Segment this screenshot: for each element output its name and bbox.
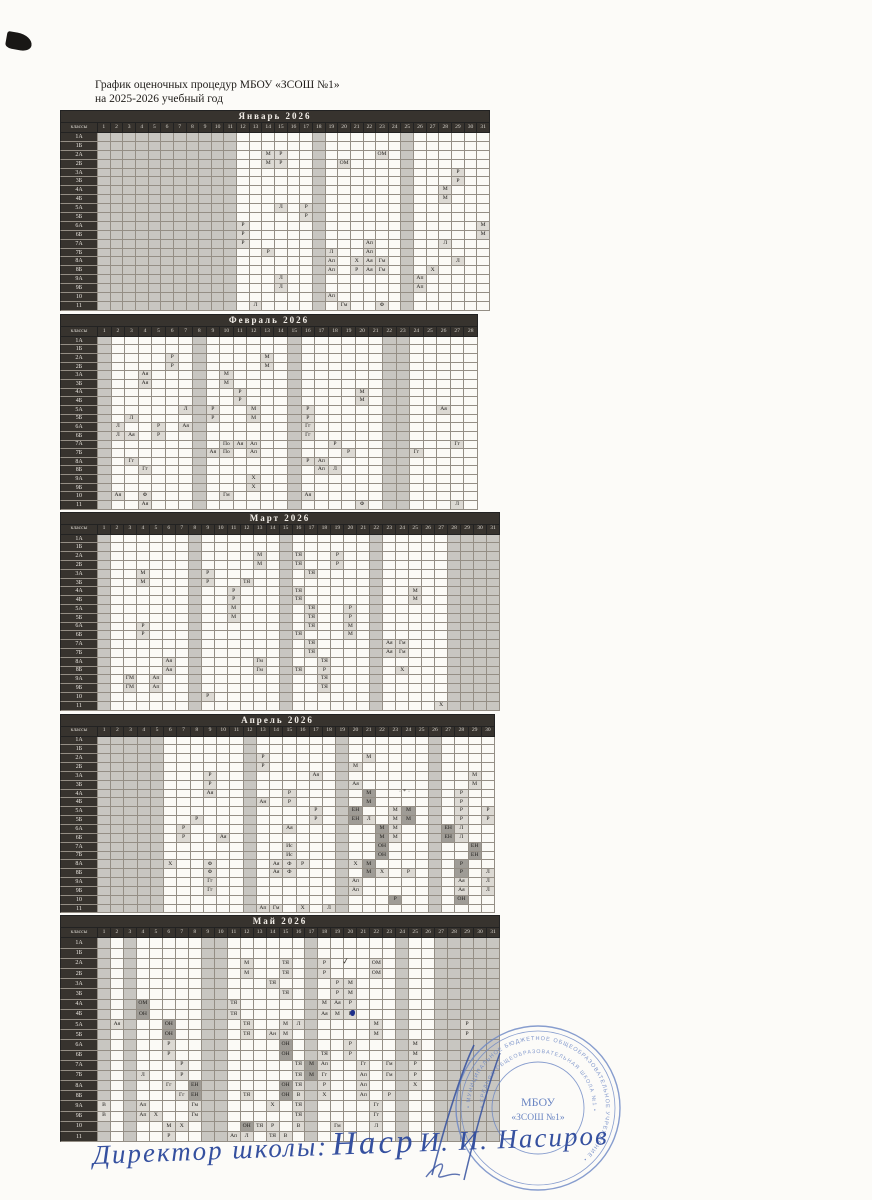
day-cell [376,133,389,142]
nonworking-day-cell [429,781,442,790]
nonworking-day-cell [124,949,137,959]
day-cell [288,284,301,293]
day-cell [376,231,389,240]
nonworking-day-cell [149,177,162,186]
day-cell [176,1101,189,1111]
class-row: 1Б [60,345,478,354]
nonworking-day-cell [98,466,112,475]
day-number: 26 [422,525,435,535]
class-row: 2АРМ [60,754,495,763]
day-cell [344,684,357,693]
day-cell [363,745,376,754]
day-cell [356,406,370,415]
class-row: 4АРТЯМ [60,587,500,596]
day-cell [344,552,357,561]
assessment-cell: Х [176,1122,189,1132]
day-cell [228,552,241,561]
assessment-cell: Р [166,363,180,372]
nonworking-day-cell [124,1071,137,1081]
day-cell [452,142,465,151]
day-cell [410,458,424,467]
nonworking-day-cell [151,878,164,887]
assessment-cell: ОМ [137,1000,150,1010]
class-row: 7АПоАяАпРГг [60,441,478,450]
day-cell [237,257,250,266]
day-cell [331,658,344,667]
nonworking-day-cell [224,133,237,142]
day-cell [409,561,422,570]
class-label: 11 [60,501,98,510]
nonworking-day-cell [383,345,397,354]
nonworking-day-cell [280,587,293,596]
nonworking-day-cell [98,257,111,266]
assessment-cell: Ая [270,869,283,878]
nonworking-day-cell [161,257,174,266]
day-cell [215,658,228,667]
day-cell [202,649,215,658]
day-cell [228,1040,241,1050]
day-cell [369,345,383,354]
nonworking-day-cell [124,938,137,948]
day-number: 11 [224,123,237,133]
nonworking-day-cell [98,363,112,372]
day-cell [422,979,435,989]
nonworking-day-cell [151,816,164,825]
nonworking-day-cell [187,195,200,204]
day-cell [288,257,301,266]
nonworking-day-cell [138,754,151,763]
nonworking-day-cell [202,1040,215,1050]
nonworking-day-cell [199,213,212,222]
day-cell [452,240,465,249]
nonworking-day-cell [448,969,461,979]
nonworking-day-cell [461,579,474,588]
nonworking-day-cell [288,397,302,406]
day-cell [300,284,313,293]
day-cell [166,466,180,475]
nonworking-day-cell [212,186,225,195]
nonworking-day-cell [370,675,383,684]
day-cell [315,371,329,380]
nonworking-day-cell [189,587,202,596]
day-cell [331,1101,344,1111]
day-cell [228,1020,241,1030]
assessment-cell: М [344,631,357,640]
day-number: 24 [402,727,415,737]
assessment-cell: ТЯ [293,1081,306,1091]
day-cell [207,371,221,380]
day-cell [439,169,452,178]
day-cell [318,693,331,702]
day-cell [247,423,261,432]
nonworking-day-cell [487,989,500,999]
day-cell [241,989,254,999]
day-cell [237,266,250,275]
day-cell [137,587,150,596]
nonworking-day-cell [487,579,500,588]
day-cell [191,790,204,799]
day-cell [389,231,402,240]
nonworking-day-cell [288,380,302,389]
assessment-cell: Р [351,266,364,275]
day-cell [315,423,329,432]
nonworking-day-cell [474,640,487,649]
day-cell [288,302,301,311]
day-cell [318,1112,331,1122]
nonworking-day-cell [474,675,487,684]
nonworking-day-cell [111,266,124,275]
day-cell [323,816,336,825]
day-cell [164,887,177,896]
day-cell [191,896,204,905]
day-cell [389,142,402,151]
nonworking-day-cell [212,240,225,249]
class-label: 9А [60,475,98,484]
day-cell [424,337,438,346]
day-cell [344,561,357,570]
nonworking-day-cell [313,133,326,142]
nonworking-day-cell [136,266,149,275]
day-cell [357,552,370,561]
day-cell [152,492,166,501]
day-cell [293,969,306,979]
nonworking-day-cell [98,133,111,142]
day-cell [241,667,254,676]
nonworking-day-cell [187,302,200,311]
nonworking-day-cell [202,1051,215,1061]
day-cell [455,754,468,763]
nonworking-day-cell [435,969,448,979]
nonworking-day-cell [212,293,225,302]
day-number: 21 [363,727,376,737]
day-cell [250,293,263,302]
day-cell [300,275,313,284]
nonworking-day-cell [98,667,111,676]
class-row: 8БАпРАяГмХ [60,266,490,275]
nonworking-day-cell [124,1081,137,1091]
day-cell [280,949,293,959]
day-cell [293,979,306,989]
nonworking-day-cell [136,249,149,258]
day-cell [220,432,234,441]
day-cell [422,675,435,684]
day-cell [217,807,230,816]
day-cell [424,423,438,432]
nonworking-day-cell [98,552,111,561]
class-row: 3АР [60,169,490,178]
nonworking-day-cell [111,869,124,878]
day-cell [267,1010,280,1020]
day-cell [451,345,465,354]
day-number: 3 [123,123,136,133]
day-cell [452,222,465,231]
assessment-cell: ОН [280,1051,293,1061]
day-cell [410,466,424,475]
day-cell [318,989,331,999]
day-cell [176,1020,189,1030]
day-cell [176,969,189,979]
assessment-cell: М [262,151,275,160]
day-cell [323,825,336,834]
day-cell [329,449,343,458]
day-cell [364,293,377,302]
day-cell [351,231,364,240]
day-cell [383,969,396,979]
nonworking-day-cell [383,441,397,450]
day-cell [189,1030,202,1040]
day-cell [270,737,283,746]
day-cell [124,658,137,667]
day-cell [139,441,153,450]
day-cell [241,596,254,605]
nonworking-day-cell [189,579,202,588]
day-cell [414,160,427,169]
nonworking-day-cell [487,623,500,632]
day-cell [329,380,343,389]
day-cell [124,552,137,561]
day-cell [125,492,139,501]
day-cell [275,142,288,151]
day-cell [416,745,429,754]
nonworking-day-cell [98,266,111,275]
nonworking-day-cell [288,406,302,415]
day-cell [370,1000,383,1010]
nonworking-day-cell [397,363,411,372]
nonworking-day-cell [487,535,500,544]
day-cell [250,275,263,284]
nonworking-day-cell [98,275,111,284]
nonworking-day-cell [98,684,111,693]
day-cell [370,1010,383,1020]
assessment-cell: Р [300,213,313,222]
day-cell [111,693,124,702]
day-cell [422,658,435,667]
day-cell [310,834,323,843]
nonworking-day-cell [151,834,164,843]
nonworking-day-cell [461,649,474,658]
class-row: 11Х [60,702,500,711]
nonworking-day-cell [123,257,136,266]
month-title: Май 2026 [60,915,500,928]
day-cell [422,702,435,711]
day-cell [293,570,306,579]
assessment-cell: Р [262,249,275,258]
assessment-cell: М [389,816,402,825]
assessment-cell: Р [402,869,415,878]
day-cell [416,763,429,772]
day-cell [204,843,217,852]
class-row: 10Ап [60,293,490,302]
day-cell [179,441,193,450]
nonworking-day-cell [136,231,149,240]
day-cell [267,1051,280,1061]
day-cell [137,596,150,605]
class-row: 11ЛГмФ [60,302,490,311]
day-number: 22 [364,123,377,133]
nonworking-day-cell [401,151,414,160]
class-label: 8Б [60,667,98,676]
day-cell [402,754,415,763]
day-cell [442,896,455,905]
day-cell [241,658,254,667]
assessment-cell: Р [331,989,344,999]
nonworking-day-cell [397,337,411,346]
day-cell [179,354,193,363]
assessment-cell: Л [323,905,336,914]
day-cell [344,640,357,649]
nonworking-day-cell [448,570,461,579]
nonworking-day-cell [202,1081,215,1091]
day-cell [228,640,241,649]
nonworking-day-cell [136,293,149,302]
assessment-cell: М [261,354,275,363]
day-cell [191,860,204,869]
day-cell [414,231,427,240]
day-cell [310,781,323,790]
day-cell [326,204,339,213]
class-label: 11 [60,702,98,711]
day-cell [389,887,402,896]
day-cell [217,852,230,861]
nonworking-day-cell [224,151,237,160]
day-cell [356,415,370,424]
assessment-cell: Л [363,816,376,825]
nonworking-day-cell [149,213,162,222]
assessment-cell: Х [247,475,261,484]
day-cell [139,397,153,406]
day-cell [383,623,396,632]
day-cell [230,754,243,763]
day-cell [331,631,344,640]
day-cell [228,1071,241,1081]
day-cell [124,623,137,632]
day-cell [469,798,482,807]
day-cell [139,484,153,493]
day-cell [342,389,356,398]
class-row: 3АРАяМ [60,772,495,781]
assessment-cell: Р [257,754,270,763]
assessment-cell: Гг [204,878,217,887]
day-cell [177,878,190,887]
day-cell [293,1000,306,1010]
day-cell [357,579,370,588]
day-number: 8 [189,525,202,535]
nonworking-day-cell [370,605,383,614]
day-cell [402,887,415,896]
day-cell [124,649,137,658]
day-cell [351,240,364,249]
nonworking-day-cell [136,240,149,249]
day-cell [442,754,455,763]
day-cell [274,406,288,415]
nonworking-day-cell [151,737,164,746]
nonworking-day-cell [124,1112,137,1122]
nonworking-day-cell [123,151,136,160]
nonworking-day-cell [474,959,487,969]
day-cell [369,406,383,415]
nonworking-day-cell [383,354,397,363]
day-cell [179,484,193,493]
day-cell [150,1091,163,1101]
assessment-cell: ТЯ [241,579,254,588]
day-cell [351,160,364,169]
day-cell [176,684,189,693]
day-cell [179,371,193,380]
nonworking-day-cell [151,905,164,914]
nonworking-day-cell [199,169,212,178]
day-number: 19 [326,123,339,133]
assessment-cell: Р [283,790,296,799]
day-cell [424,458,438,467]
day-cell [139,389,153,398]
nonworking-day-cell [111,195,124,204]
nonworking-day-cell [98,640,111,649]
day-cell [207,363,221,372]
nonworking-day-cell [193,475,207,484]
nonworking-day-cell [187,151,200,160]
day-cell [305,702,318,711]
day-cell [241,684,254,693]
day-cell [409,543,422,552]
assessment-cell: М [254,552,267,561]
assessment-cell: Р [234,389,248,398]
class-label: 1Б [60,345,98,354]
assessment-cell: Р [318,959,331,969]
day-cell [451,475,465,484]
day-cell [124,631,137,640]
day-cell [326,177,339,186]
nonworking-day-cell [123,169,136,178]
nonworking-day-cell [396,949,409,959]
day-cell [177,869,190,878]
nonworking-day-cell [123,293,136,302]
nonworking-day-cell [336,781,349,790]
day-cell [464,363,478,372]
day-cell [357,1000,370,1010]
pen-strokes-svg [380,1025,640,1195]
day-cell [189,1051,202,1061]
day-cell [283,763,296,772]
class-label: 7А [60,240,98,249]
class-row: 8АГгРАп [60,458,478,467]
nonworking-day-cell [244,798,257,807]
assessment-cell: Р [310,816,323,825]
day-cell [111,587,124,596]
day-cell [389,860,402,869]
assessment-cell: Ап [364,249,377,258]
assessment-cell: ТЯ [305,614,318,623]
day-cell [383,1000,396,1010]
nonworking-day-cell [174,293,187,302]
day-cell [150,605,163,614]
day-cell [254,623,267,632]
nonworking-day-cell [124,772,137,781]
day-cell [342,371,356,380]
day-cell [442,878,455,887]
nonworking-day-cell [336,869,349,878]
day-cell [305,693,318,702]
day-cell [215,614,228,623]
day-cell [424,371,438,380]
day-cell [338,222,351,231]
day-cell [410,406,424,415]
assessment-cell: Гг [125,458,139,467]
day-cell [424,354,438,363]
nonworking-day-cell [193,492,207,501]
day-cell [163,561,176,570]
class-label: 6А [60,623,98,632]
scanned-page: { "doc": { "title_line1": "График оценоч… [0,0,872,1200]
